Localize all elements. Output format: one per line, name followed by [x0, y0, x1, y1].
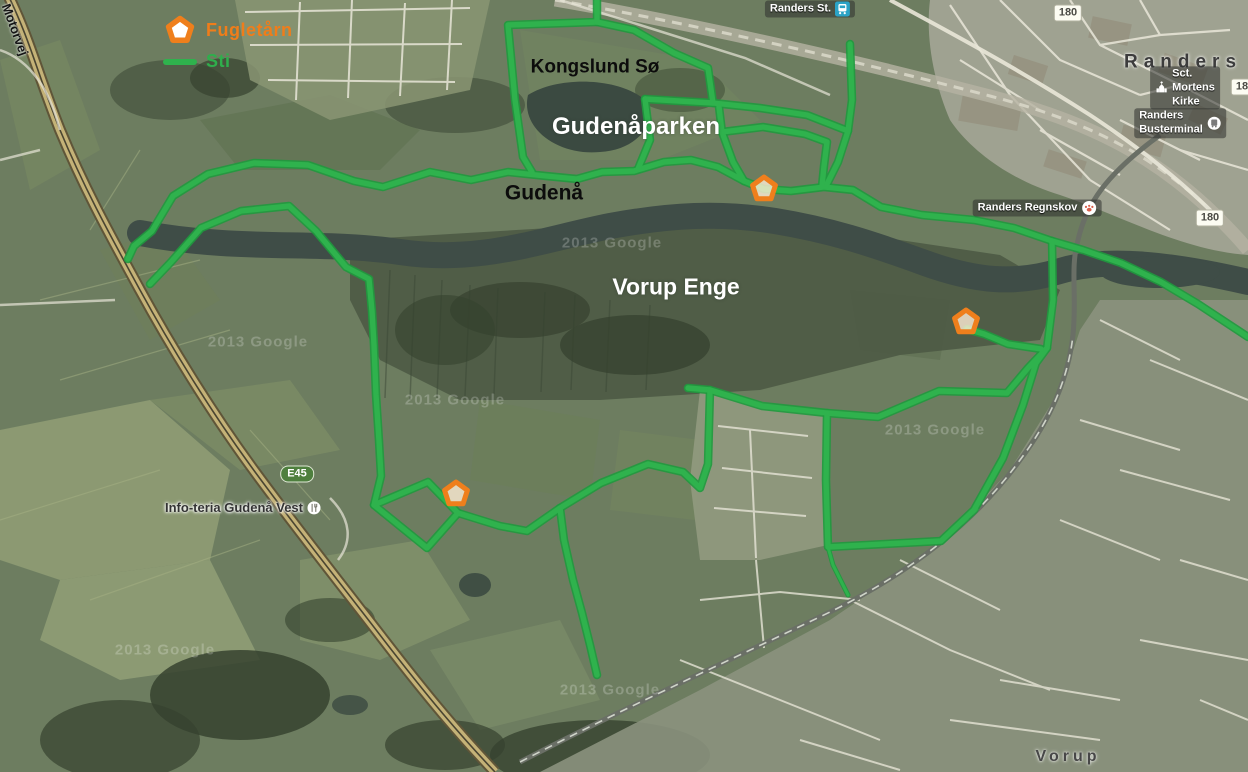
poi-label: Randers St. — [770, 2, 831, 16]
poi-randers-st: Randers St. — [765, 1, 855, 18]
road-shield-180-3: 180 — [1231, 79, 1248, 96]
label-vorup-enge: Vorup Enge — [612, 276, 739, 299]
legend-item-fugletaarn: Fugletårn — [163, 14, 293, 46]
satellite-map: MotorvejKongslund SøGudenåparkenGudenåVo… — [0, 0, 1248, 772]
church-icon — [1155, 82, 1168, 95]
poi-label: Randers Busterminal — [1139, 109, 1203, 137]
label-layer: MotorvejKongslund SøGudenåparkenGudenåVo… — [0, 0, 1248, 772]
poi-label: Sct. Mortens Kirke — [1172, 67, 1215, 108]
google-watermark: 2013 Google — [115, 642, 215, 659]
poi-label: Randers Regnskov — [978, 201, 1078, 215]
google-watermark: 2013 Google — [208, 334, 308, 351]
restaurant-icon — [307, 501, 321, 515]
poi-label: Info-teria Gudenå Vest — [165, 500, 303, 516]
label-kongslund-soe: Kongslund Sø — [531, 58, 660, 77]
label-gudenaaparken: Gudenåparken — [552, 115, 720, 139]
bus-icon — [1207, 116, 1221, 130]
google-watermark: 2013 Google — [405, 392, 505, 409]
poi-infoteria: Info-teria Gudenå Vest — [160, 499, 326, 517]
road-shield-180-2: 180 — [1054, 5, 1082, 22]
poi-sct-mortens-kirke: Sct. Mortens Kirke — [1150, 66, 1220, 109]
poi-randers-busterminal: Randers Busterminal — [1134, 108, 1226, 138]
bird-tower-icon — [163, 14, 197, 46]
road-shield-180-1: 180 — [1196, 210, 1224, 227]
trail-line-icon — [163, 59, 197, 65]
paw-icon — [1081, 201, 1096, 216]
label-vorup: Vorup — [1035, 749, 1100, 765]
train-icon — [835, 2, 850, 17]
poi-randers-regnskov: Randers Regnskov — [973, 200, 1102, 217]
legend-label-fugletaarn: Fugletårn — [206, 20, 293, 41]
road-shield-e45-0: E45 — [280, 466, 314, 483]
map-legend: Fugletårn Sti — [163, 14, 293, 72]
legend-label-sti: Sti — [206, 51, 231, 72]
label-gudenaa: Gudenå — [505, 183, 583, 204]
google-watermark: 2013 Google — [885, 422, 985, 439]
legend-item-sti: Sti — [163, 51, 293, 72]
google-watermark: 2013 Google — [560, 682, 660, 699]
google-watermark: 2013 Google — [562, 235, 662, 252]
label-motorvej: Motorvej — [0, 2, 31, 57]
